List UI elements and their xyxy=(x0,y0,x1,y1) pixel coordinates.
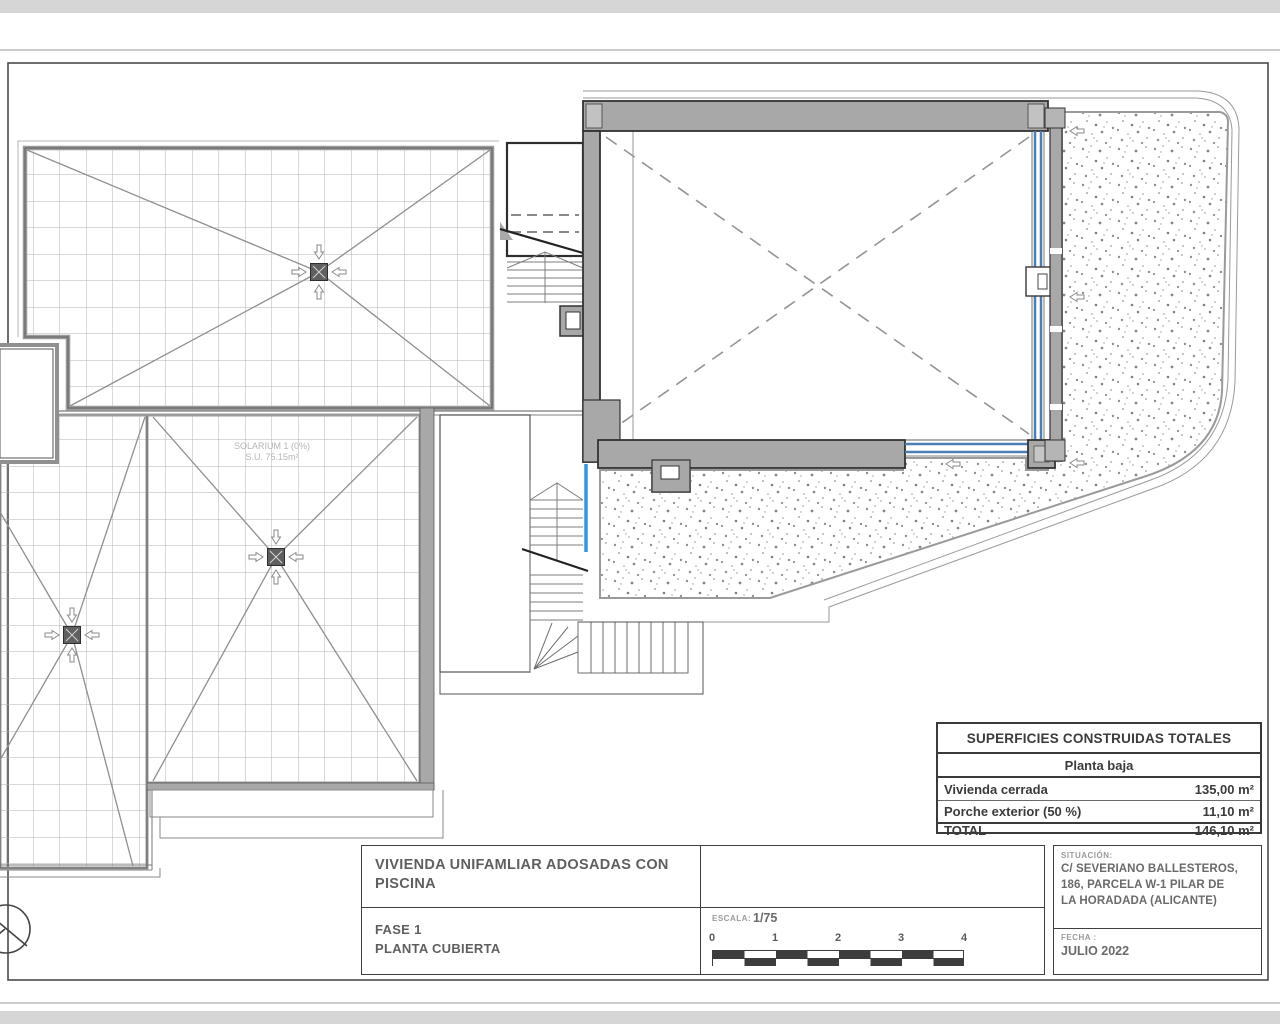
project-title: VIVIENDA UNIFAMLIAR ADOSADAS CON PISCINA xyxy=(362,846,701,908)
main-building xyxy=(583,101,1065,492)
location-block: SITUACIÓN: C/ SEVERIANO BALLESTEROS, 186… xyxy=(1053,845,1262,975)
solarium-area-label: S.U. 75.15m² xyxy=(245,452,298,462)
scale-tick: 1 xyxy=(772,932,778,944)
scale-bar xyxy=(712,950,964,966)
table-row-total: TOTAL 146,10 m² xyxy=(938,824,1260,837)
areas-table: SUPERFICIES CONSTRUIDAS TOTALES Planta b… xyxy=(936,722,1262,834)
location-line: 186, PARCELA W-1 PILAR DE xyxy=(1061,878,1254,894)
scale-tick: 3 xyxy=(898,932,904,944)
title-block-empty-cell xyxy=(701,846,1044,908)
scale-tick: 4 xyxy=(961,932,967,944)
location-line: C/ SEVERIANO BALLESTEROS, xyxy=(1061,862,1254,878)
scale-cell: ESCALA: 1/75 0 1 2 3 4 xyxy=(701,908,1044,974)
stair-break-line xyxy=(522,549,588,571)
row-label: Porche exterior (50 %) xyxy=(944,804,1081,819)
areas-table-title: SUPERFICIES CONSTRUIDAS TOTALES xyxy=(938,724,1260,754)
roof-parapet-bottom xyxy=(147,783,434,790)
phase-sheet-cell: FASE 1 PLANTA CUBIERTA xyxy=(362,908,701,974)
table-row: Vivienda cerrada 135,00 m² xyxy=(938,778,1260,801)
north-arrow-icon xyxy=(0,905,30,953)
location-line: LA HORADADA (ALICANTE) xyxy=(1061,894,1254,910)
planter xyxy=(0,345,57,462)
scale-label: ESCALA: xyxy=(712,914,751,923)
location-cell: SITUACIÓN: C/ SEVERIANO BALLESTEROS, 186… xyxy=(1054,846,1261,929)
areas-table-floor: Planta baja xyxy=(938,754,1260,778)
table-row: Porche exterior (50 %) 11,10 m² xyxy=(938,801,1260,824)
plan-sheet: SOLARIUM 1 (0%) S.U. 75.15m² xyxy=(0,0,1280,1024)
building-interior xyxy=(600,131,1035,440)
stairwell xyxy=(440,415,588,672)
row-value: 135,00 m² xyxy=(1195,782,1254,797)
staircase xyxy=(530,480,583,672)
scale-tick: 0 xyxy=(709,932,715,944)
wall-bottom xyxy=(598,440,905,468)
date-cell: FECHA : JULIO 2022 xyxy=(1054,929,1261,958)
wall-top xyxy=(583,101,1048,131)
scale-value: 1/75 xyxy=(753,911,777,925)
column xyxy=(586,104,602,128)
date-label: FECHA : xyxy=(1061,933,1254,942)
phase-label: FASE 1 xyxy=(375,921,692,940)
location-label: SITUACIÓN: xyxy=(1061,851,1254,860)
row-value: 11,10 m² xyxy=(1203,804,1254,819)
entry-stair-block xyxy=(500,143,586,336)
row-value: 146,10 m² xyxy=(1195,823,1254,838)
solarium-label: SOLARIUM 1 (0%) xyxy=(234,441,310,451)
row-label: TOTAL xyxy=(944,823,986,838)
column xyxy=(1028,104,1044,128)
glazing-bottom xyxy=(905,440,1028,456)
sheet-label: PLANTA CUBIERTA xyxy=(375,940,692,959)
upper-left-roof xyxy=(18,141,499,408)
roof-parapet-right xyxy=(420,408,434,790)
title-block: VIVIENDA UNIFAMLIAR ADOSADAS CON PISCINA… xyxy=(361,845,1045,975)
row-label: Vivienda cerrada xyxy=(944,782,1048,797)
date-value: JULIO 2022 xyxy=(1061,944,1254,958)
scale-tick: 2 xyxy=(835,932,841,944)
